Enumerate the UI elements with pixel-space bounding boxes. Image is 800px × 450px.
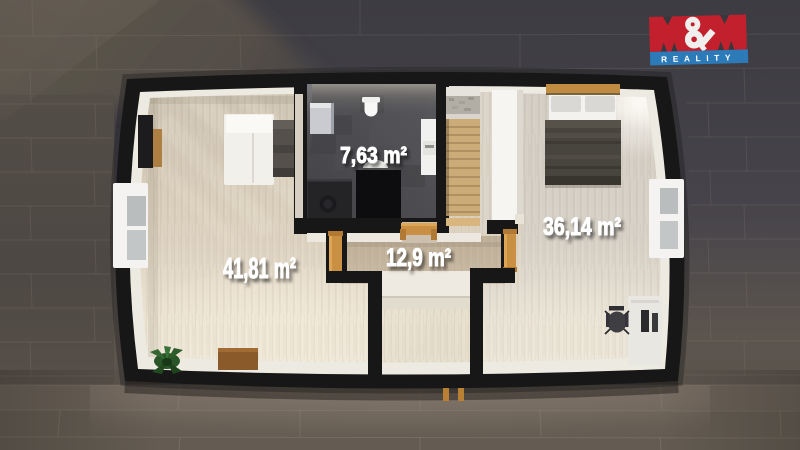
svg-text:41,81 m²: 41,81 m² (223, 253, 296, 285)
svg-text:36,14 m²: 36,14 m² (543, 213, 621, 241)
svg-text:7,63 m²: 7,63 m² (340, 142, 407, 168)
svg-text:REALITY: REALITY (661, 52, 736, 64)
svg-text:12,9 m²: 12,9 m² (386, 244, 451, 272)
